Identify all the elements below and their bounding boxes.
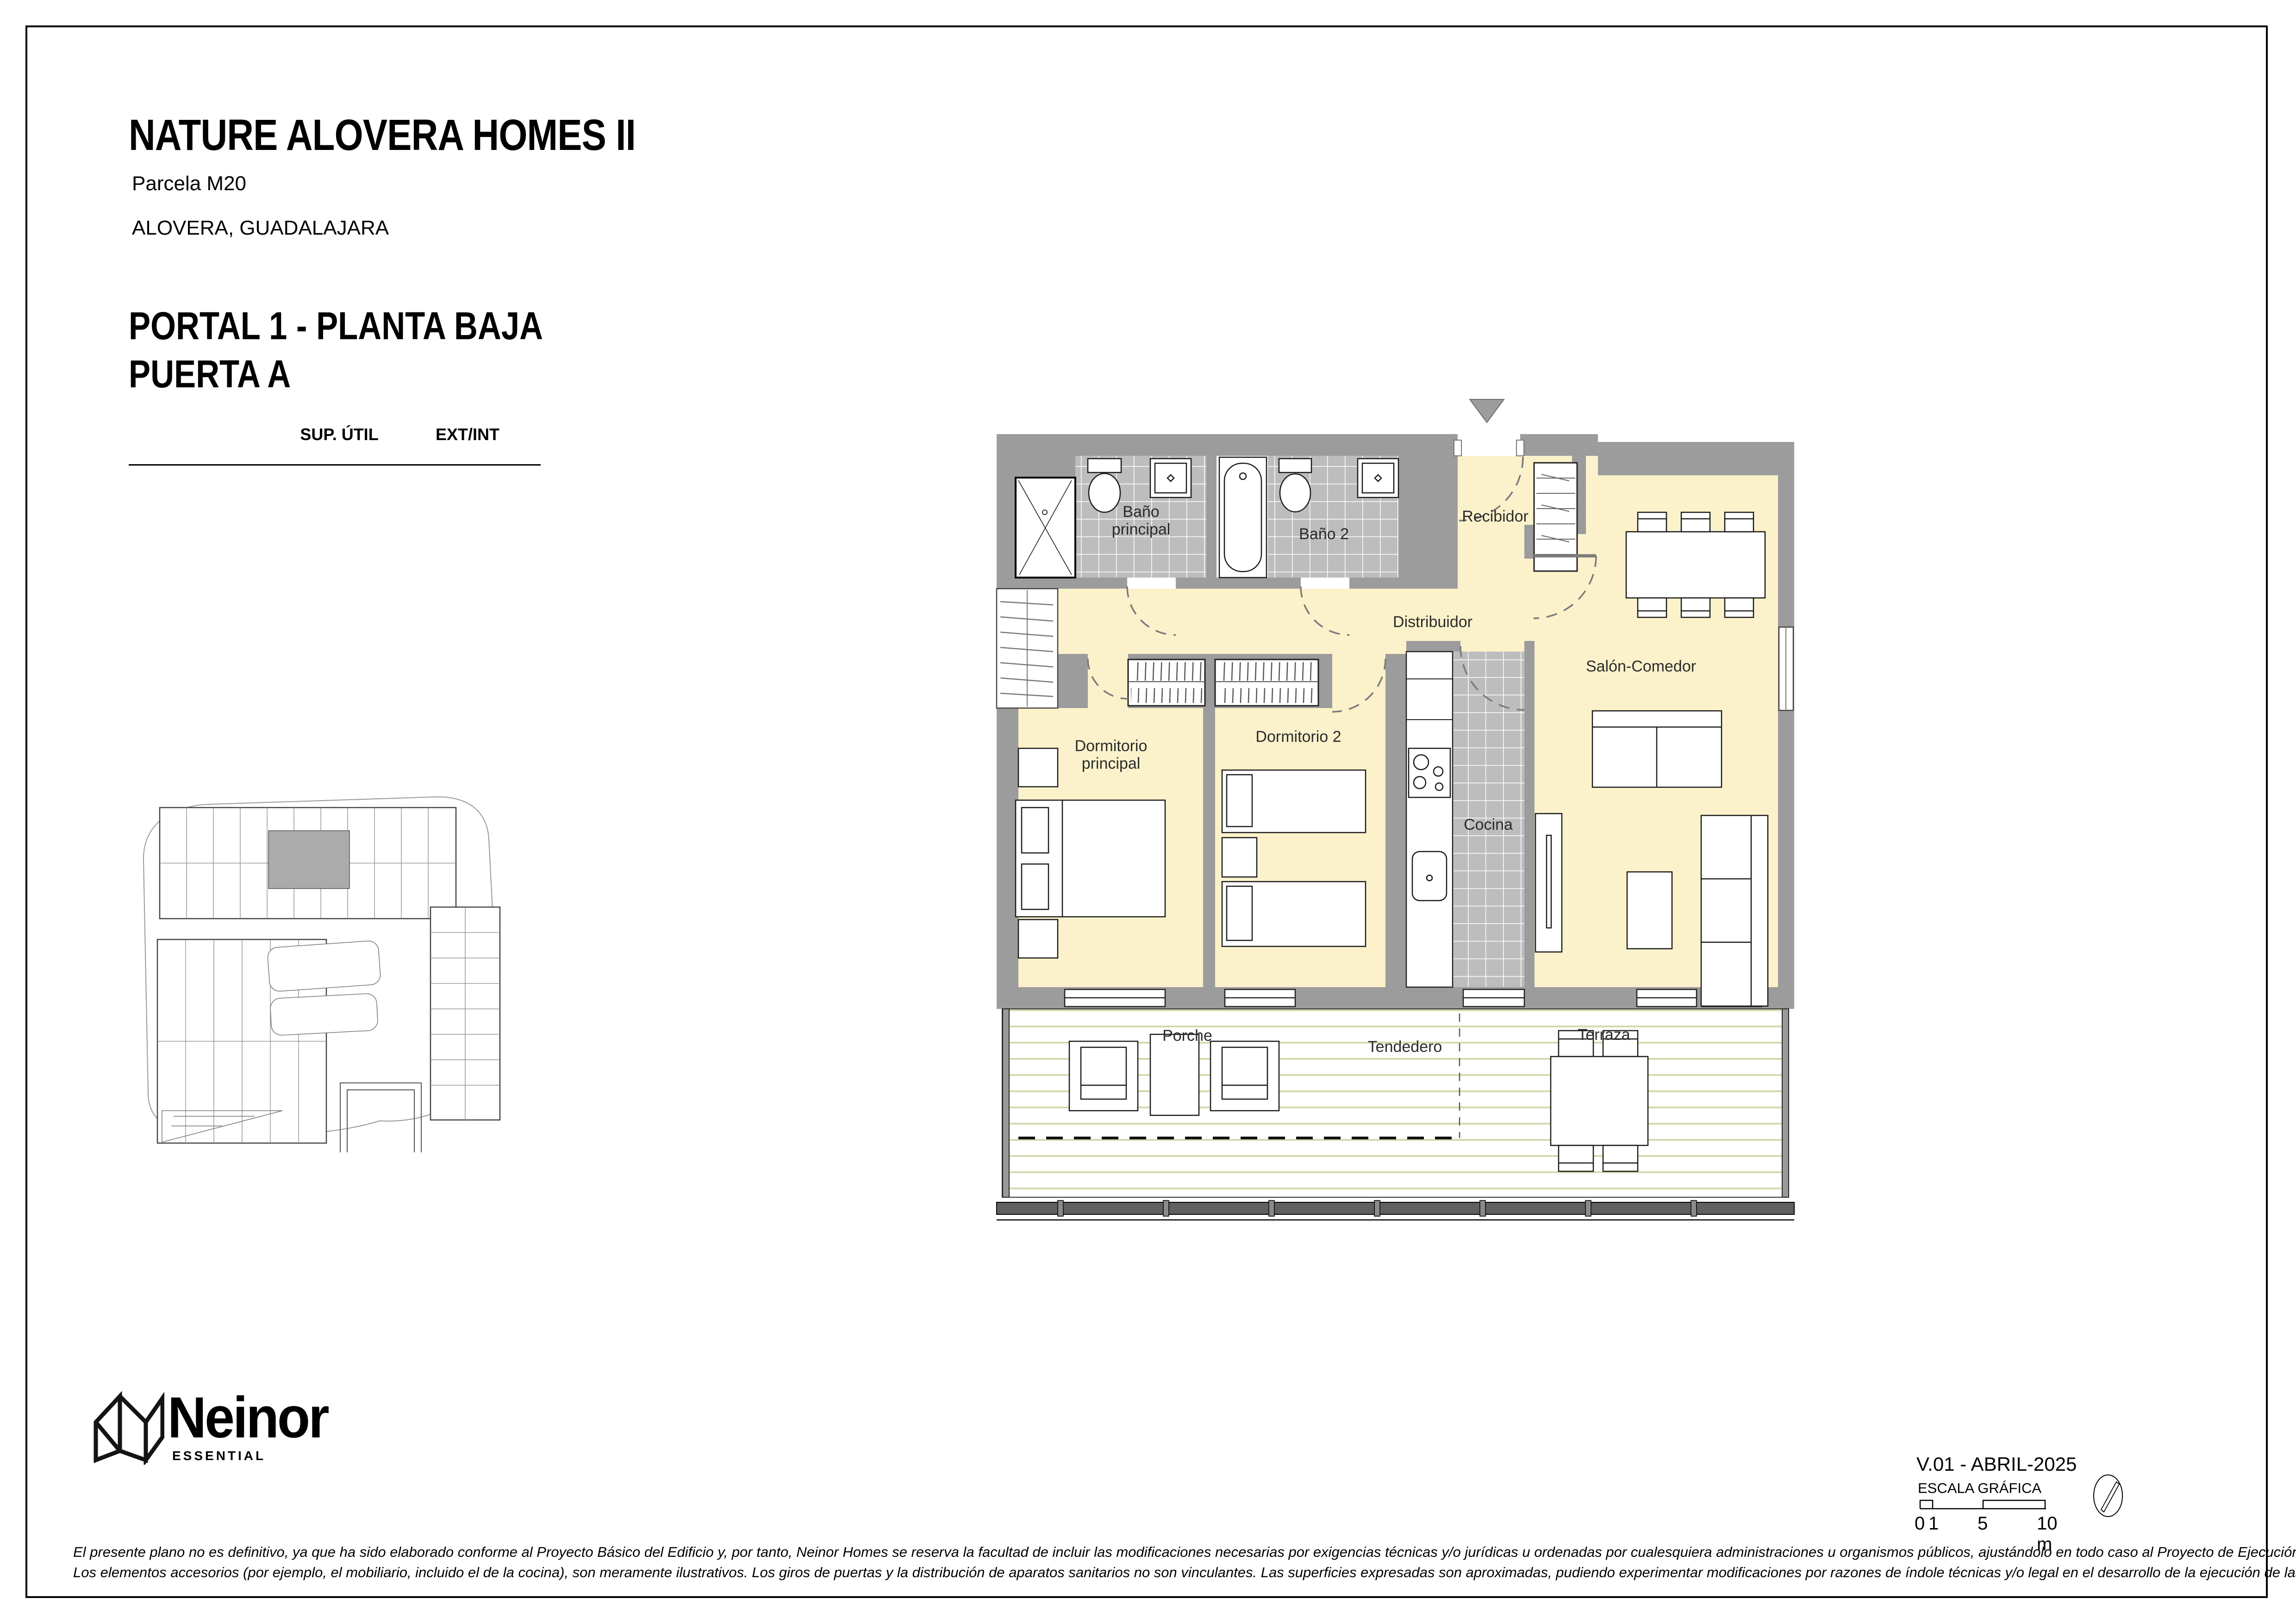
unit-title: PORTAL 1 - PLANTA BAJA PUERTA A bbox=[129, 302, 622, 398]
label-bano-2: Baño 2 bbox=[1299, 525, 1349, 543]
label-porche: Porche bbox=[1162, 1027, 1212, 1045]
label-terraza: Terraza bbox=[1578, 1026, 1630, 1044]
bed-principal bbox=[1016, 800, 1165, 917]
bed-dorm2-a bbox=[1222, 770, 1366, 833]
disclaimer-line-2: Los elementos accesorios (por ejemplo, e… bbox=[73, 1564, 2296, 1581]
sink-bath2 bbox=[1358, 459, 1398, 497]
kitchen-counter bbox=[1406, 652, 1453, 987]
column-header-area: SUP. ÚTIL bbox=[281, 425, 397, 444]
north-compass-icon bbox=[2089, 1471, 2128, 1521]
label-cocina: Cocina bbox=[1464, 816, 1513, 833]
scale-tick-5: 5 bbox=[1978, 1513, 1988, 1534]
site-key-plan bbox=[130, 787, 509, 1152]
svg-text:principal: principal bbox=[1112, 521, 1171, 538]
porche-chair-1 bbox=[1069, 1041, 1138, 1111]
terrace-railing bbox=[997, 1200, 1794, 1220]
svg-text:principal: principal bbox=[1082, 755, 1141, 772]
toilet-bath2 bbox=[1279, 459, 1311, 512]
page-title: NATURE ALOVERA HOMES II bbox=[129, 110, 732, 161]
sofa-chaise bbox=[1701, 815, 1768, 1006]
label-bano-principal: Baño bbox=[1123, 503, 1159, 521]
porche-chair-2 bbox=[1210, 1041, 1279, 1111]
pool bbox=[340, 1083, 421, 1152]
terrace-rail-left bbox=[1003, 1009, 1009, 1197]
bathtub bbox=[1219, 457, 1267, 578]
parcel-subtitle: Parcela M20 bbox=[132, 172, 246, 195]
brand-tagline: ESSENTIAL bbox=[172, 1449, 266, 1463]
courtyard bbox=[267, 940, 381, 1036]
label-dormitorio-2: Dormitorio 2 bbox=[1255, 728, 1341, 746]
label-distribuidor: Distribuidor bbox=[1393, 613, 1472, 631]
coffee-table bbox=[1627, 872, 1672, 949]
label-tendedero: Tendedero bbox=[1368, 1038, 1442, 1056]
floor-plan: Baño principal Baño 2 Recibidor Distribu… bbox=[993, 396, 1808, 1229]
kitchen-sink bbox=[1412, 852, 1447, 901]
dining-table bbox=[1626, 512, 1765, 617]
sink-bath1 bbox=[1150, 459, 1191, 497]
wardrobe-dorm2 bbox=[1215, 659, 1318, 706]
scale-tick-1: 1 bbox=[1928, 1513, 1939, 1534]
wardrobe-principal bbox=[1128, 659, 1205, 706]
brand-name: Neinor bbox=[168, 1385, 328, 1451]
door-line: PUERTA A bbox=[129, 350, 291, 398]
neinor-logo-icon bbox=[90, 1391, 164, 1465]
window-left-persiana bbox=[997, 589, 1058, 708]
portal-line: PORTAL 1 - PLANTA BAJA bbox=[129, 302, 543, 350]
plan-sheet: NATURE ALOVERA HOMES II Parcela M20 ALOV… bbox=[0, 0, 2296, 1623]
label-recibidor: Recibidor bbox=[1462, 508, 1529, 525]
nightstand-dorm2 bbox=[1222, 838, 1257, 877]
entrance-arrow-icon bbox=[1470, 399, 1504, 423]
scale-bar bbox=[1919, 1497, 2049, 1511]
toilet-bath1 bbox=[1088, 459, 1121, 512]
scale-tick-0: 0 bbox=[1915, 1513, 1925, 1534]
location-subtitle: ALOVERA, GUADALAJARA bbox=[132, 217, 389, 240]
nightstand-principal-2 bbox=[1018, 920, 1058, 958]
label-salon-comedor: Salón-Comedor bbox=[1586, 658, 1696, 675]
sofa bbox=[1592, 711, 1722, 787]
window-right bbox=[1779, 627, 1793, 710]
table-rule bbox=[129, 464, 541, 466]
tv-unit bbox=[1535, 814, 1562, 952]
nightstand-principal-1 bbox=[1018, 748, 1058, 787]
label-dormitorio-principal: Dormitorio bbox=[1075, 737, 1148, 755]
shower-tray bbox=[1016, 478, 1075, 578]
porche-table bbox=[1150, 1034, 1199, 1115]
bed-dorm2-b bbox=[1222, 882, 1366, 946]
plan-version: V.01 - ABRIL-2025 bbox=[1916, 1453, 2077, 1475]
highlighted-unit bbox=[268, 831, 349, 889]
cooktop bbox=[1409, 748, 1450, 797]
scale-ticks: 0 1 5 10 m bbox=[1913, 1513, 2061, 1534]
terrace-rail-right bbox=[1782, 1009, 1789, 1197]
disclaimer-line-1: El presente plano no es definitivo, ya q… bbox=[73, 1544, 2296, 1561]
scale-label: ESCALA GRÁFICA bbox=[1918, 1480, 2041, 1497]
column-header-extint: EXT/INT bbox=[425, 425, 510, 444]
